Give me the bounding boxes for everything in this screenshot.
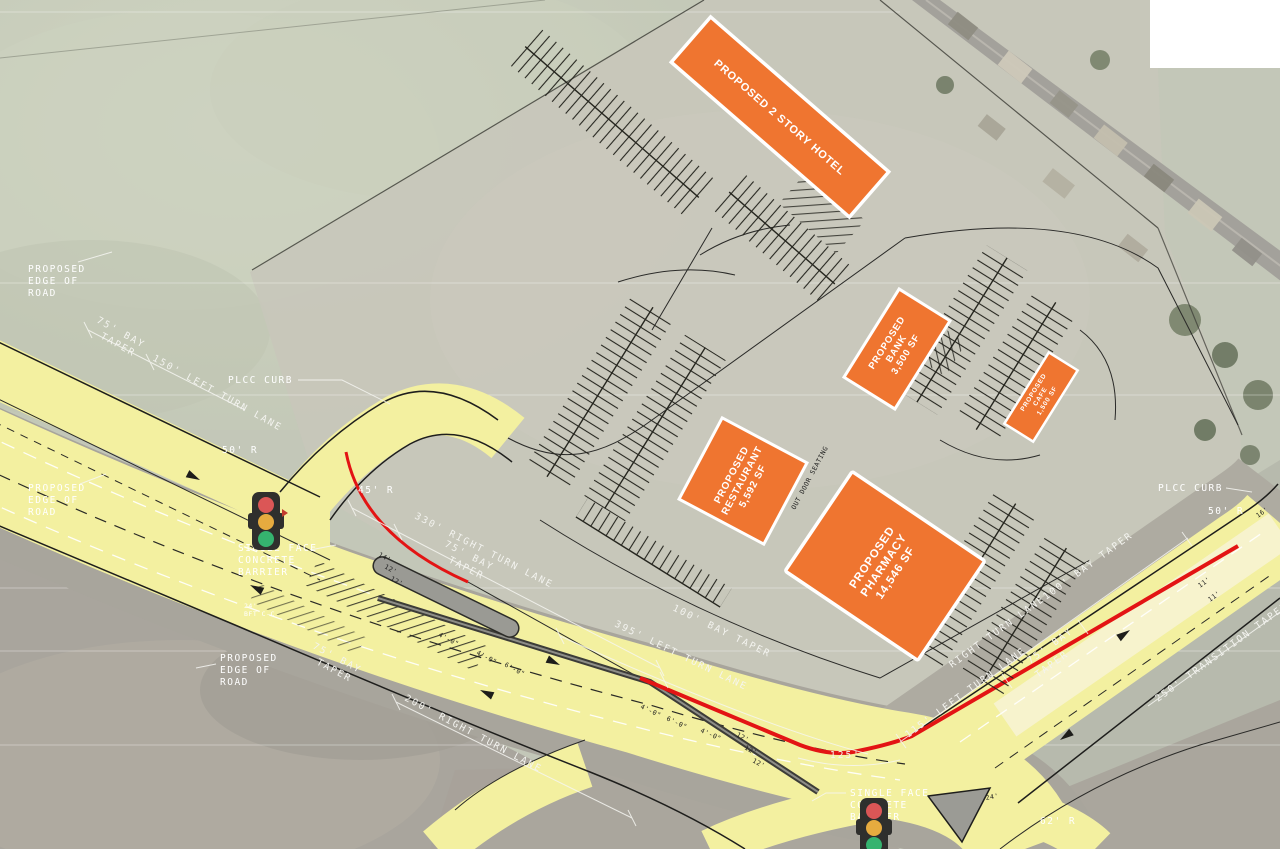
radius-45: 45' R xyxy=(358,485,394,496)
svg-text:SINGLE FACE: SINGLE FACE xyxy=(850,788,929,799)
svg-text:CONCRETE: CONCRETE xyxy=(238,555,296,566)
dim-125: 125' xyxy=(830,750,861,761)
svg-text:PROPOSED: PROPOSED xyxy=(220,653,278,664)
signal-green-light xyxy=(258,531,274,547)
radius-62: 62' R xyxy=(1040,816,1076,827)
svg-text:ROAD: ROAD xyxy=(28,288,57,299)
svg-text:PLCC CURB: PLCC CURB xyxy=(228,375,293,386)
svg-text:ROAD: ROAD xyxy=(28,507,57,518)
note-bft-2: BFT C-C xyxy=(244,610,275,618)
blank-corner-patch xyxy=(1150,0,1280,68)
signal-red-light xyxy=(258,497,274,513)
svg-text:PLCC CURB: PLCC CURB xyxy=(1158,483,1223,494)
note-bft-1: 24' xyxy=(244,602,257,610)
signal-yellow-light xyxy=(258,514,274,530)
radius-50-right: 50' R xyxy=(1208,506,1244,517)
site-plan-drawing: PROPOSED 2 STORY HOTEL PROPOSED BANK 3,5… xyxy=(0,0,1280,849)
radius-50-left: 50' R xyxy=(222,445,258,456)
svg-text:EDGE OF: EDGE OF xyxy=(28,276,79,287)
svg-text:EDGE OF: EDGE OF xyxy=(28,495,79,506)
svg-text:PROPOSED: PROPOSED xyxy=(28,264,86,275)
svg-text:BARRIER: BARRIER xyxy=(238,567,289,578)
site-plan-canvas: PROPOSED 2 STORY HOTEL PROPOSED BANK 3,5… xyxy=(0,0,1280,849)
svg-text:PROPOSED: PROPOSED xyxy=(28,483,86,494)
svg-text:EDGE OF: EDGE OF xyxy=(220,665,271,676)
traffic-signal-bottom xyxy=(856,798,892,849)
signal-yellow-light xyxy=(866,820,882,836)
signal-red-light xyxy=(866,803,882,819)
svg-text:ROAD: ROAD xyxy=(220,677,249,688)
